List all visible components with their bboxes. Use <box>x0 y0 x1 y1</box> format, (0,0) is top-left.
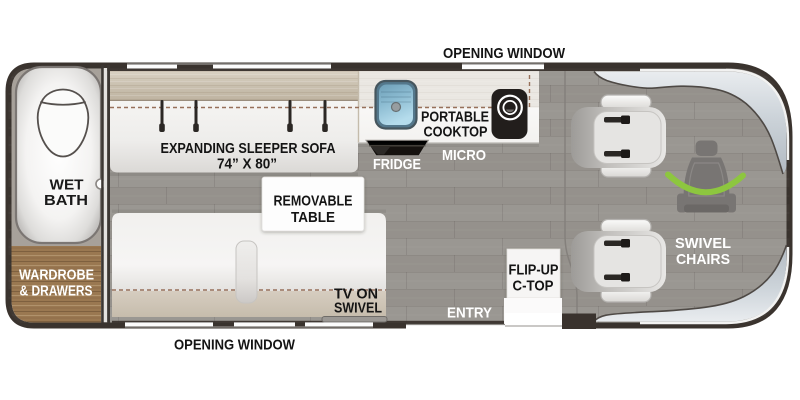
svg-text:REMOVABLE: REMOVABLE <box>274 192 353 209</box>
svg-text:CHAIRS: CHAIRS <box>676 251 730 268</box>
svg-text:WARDROBE: WARDROBE <box>19 266 94 283</box>
svg-text:OPENING WINDOW: OPENING WINDOW <box>443 45 566 62</box>
svg-text:OPENING WINDOW: OPENING WINDOW <box>174 336 296 353</box>
svg-text:ENTRY: ENTRY <box>447 304 492 321</box>
svg-text:BATH: BATH <box>44 192 88 209</box>
svg-text:TABLE: TABLE <box>291 209 335 226</box>
svg-text:WET: WET <box>50 176 84 193</box>
svg-text:74” X 80”: 74” X 80” <box>217 155 277 172</box>
svg-text:COOKTOP: COOKTOP <box>424 123 488 140</box>
svg-text:C-TOP: C-TOP <box>513 277 554 294</box>
svg-text:SWIVEL: SWIVEL <box>675 235 731 252</box>
svg-text:& DRAWERS: & DRAWERS <box>20 282 93 299</box>
svg-text:FLIP-UP: FLIP-UP <box>509 261 559 278</box>
svg-text:FRIDGE: FRIDGE <box>373 156 421 173</box>
svg-text:MICRO: MICRO <box>442 147 486 164</box>
svg-text:SWIVEL: SWIVEL <box>334 299 382 316</box>
